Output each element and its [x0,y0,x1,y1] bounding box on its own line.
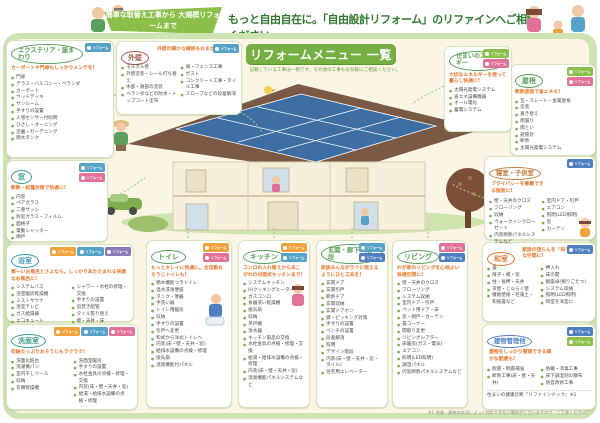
footnote: ※1 地域・建物の状況によって対応できない場合がございますので、ご了承ください。 [150,410,590,416]
bullet-icon: ● [11,116,14,123]
menu-item: ●手すりの設置 [151,322,227,329]
bullet-icon: ● [151,288,154,295]
badge-person-icon [441,256,445,260]
bullet-icon: ● [321,288,324,295]
bullet-icon: ● [487,293,490,306]
bullet-icon: ● [11,312,14,319]
bullet-icon: ● [11,229,14,236]
bullet-icon: ● [11,285,14,292]
bullet-icon: ● [489,206,492,213]
category-box-kitchen: リフォームリフォーム キッチン コンロの入れ替えからあこがれの対面式キッチンまで… [238,240,310,408]
bullet-icon: ● [151,336,154,343]
bullet-icon: ● [542,227,545,234]
menu-item: ●照明(LED照明) [397,356,463,363]
bullet-icon: ● [11,305,14,312]
refine-dock-item: 住まいの健康診断「リファインドック」※1 [487,390,591,398]
bullet-icon: ● [397,281,400,288]
menu-item: ●タイル張り替え [72,312,130,319]
menu-item: ●消臭機能付パネル [151,363,227,370]
menu-item: ●畳 [487,266,538,273]
bullet-icon: ● [397,288,400,295]
bullet-icon: ● [11,95,14,102]
menu-item: ●床の間 [541,273,592,280]
bullet-icon: ● [11,365,14,372]
category-badge: リフォーム [50,247,76,256]
banner-ribbon: 簡単な取替え工事から 大規模リフォームまで [104,7,222,34]
bullet-icon: ● [243,376,246,389]
badge-person-icon [283,246,287,250]
menu-item: ●システムキッチン [243,281,305,288]
menu-item: ●IHクッキングヒーター [243,288,305,295]
badge-person-icon [81,166,85,170]
menu-item: ●水栓金具の点検・修理・交換 [243,342,305,355]
bullet-icon: ● [11,123,14,130]
bullet-icon: ● [515,112,518,119]
bullet-icon: ● [515,133,518,140]
category-badge: リフォーム [109,327,135,336]
badge-person-icon [107,250,111,254]
bullet-icon: ● [489,199,492,206]
bullet-icon: ● [542,206,545,213]
bullet-icon: ● [515,126,518,133]
menu-item: ●押入れ [541,266,592,273]
bullet-icon: ● [321,357,324,370]
menu-item: ●衣類乾燥機 [11,386,71,393]
menu-item: ●面格子 [11,222,103,229]
category-badge: リフォーム [359,253,385,262]
menu-item: ●塀・フェンス工事 [181,65,238,72]
badge-person-icon [569,330,573,334]
bullet-icon: ● [11,222,14,229]
badge-person-icon [485,62,489,66]
bullet-icon: ● [397,336,400,343]
badge-person-icon [52,250,56,254]
menu-item: ●内装断熱パネルシステムなど [489,233,539,246]
badge-person-icon [283,256,287,260]
category-caption: わが家のリビングを心地よい快適空間に! [397,266,463,279]
menu-item: ●フローリング [489,206,539,213]
bullet-icon: ● [321,302,324,309]
menu-item: ●内装(床・壁・天井・窓・タイル) [321,357,383,370]
category-box-genkan: リフォームリフォーム 玄関・廊下・階段 家族みんながラクに使えるようにひと工夫を… [316,240,388,408]
bullet-icon: ● [243,281,246,288]
bullet-icon: ● [449,95,452,102]
menu-item: ●シャワー・水栓の修理・交換 [72,285,130,298]
badge-person-icon [80,250,84,254]
badge-person-icon [205,256,209,260]
category-badge: リフォーム [567,337,593,346]
category-badge: リフォーム [81,327,107,336]
bullet-icon: ● [74,365,77,372]
category-box-toilet: リフォームリフォーム トイレ もっとキレイに快適に。全自動おそうじトイレも! ●… [146,240,232,408]
menu-item: ●浄水器 [243,329,305,336]
bullet-icon: ● [397,370,400,377]
menu-item: ●テラス・バルコニー・ベランダ [11,82,109,89]
category-badge: リフォーム [567,245,593,254]
category-title: トイレ [151,250,186,264]
menu-item: ●機能壁紙・珪藻土・和紙畳など [487,293,538,306]
category-badge: リフォーム [483,49,509,58]
menu-item: ●雨水タンク [11,136,109,143]
category-badge: リフォーム [203,253,229,262]
bullet-icon: ● [243,342,246,355]
category-badge: リフォーム [439,253,465,262]
category-badge: リフォーム [359,243,385,252]
badge-person-icon [569,340,573,344]
bullet-icon: ● [542,220,545,227]
category-badge: リフォーム [203,243,229,252]
bullet-icon: ● [72,298,75,305]
page-title: リフォームメニュー 一覧 [246,44,396,64]
bullet-icon: ● [121,92,124,105]
bullet-icon: ● [321,316,324,323]
badge-person-icon [84,330,88,334]
menu-item: ●コンクリート工事・タイル工事 [181,79,238,92]
bullet-icon: ● [243,322,246,329]
bullet-icon: ● [151,349,154,356]
badge-person-icon [569,80,573,84]
bullet-icon: ● [151,363,154,370]
category-badge: リフォーム [105,247,131,256]
bullet-icon: ● [397,349,400,356]
bullet-icon: ● [515,139,518,146]
badge-person-icon [441,246,445,250]
category-title: 建物管理他 [487,335,532,348]
bullet-icon: ● [72,305,75,312]
category-caption: 断熱塗装で省エネも! [515,90,591,96]
menu-item: ●雨漏り [515,119,591,126]
bullet-icon: ● [397,308,400,315]
menu-item: ●壁・天井のクロス [397,281,463,288]
category-badge: リフォーム [567,327,593,336]
menu-item: ●玄関ドアホン [321,309,383,316]
menu-item: ●防犯ガラス・フィルム [11,215,103,222]
menu-item: ●エアコン [542,206,592,213]
bullet-icon: ● [321,281,324,288]
bullet-icon: ● [11,299,14,306]
menu-item: ●木部・鉄部の塗装 [121,85,178,92]
category-title: エクステリア・屋まわり [11,44,83,64]
menu-item: ●防音改修工事 [541,381,592,388]
menu-item: ●玄関収納 [321,302,383,309]
bullet-icon: ● [487,266,490,273]
category-box-shinshitsu: リフォーム 寝室・子供室 プライバシーを尊重できる個室に! ●壁・天井のクロス●… [484,156,596,240]
category-box-energy: リフォームリフォーム 住まいのエネルギー 大切なエネルギーを使って暮らし快適に!… [444,46,512,132]
menu-item: ●人感センサー付照明 [11,116,109,123]
menu-item: ●照明 [321,343,383,350]
bullet-icon: ● [397,295,400,302]
menu-item: ●断熱ドア [321,295,383,302]
bullet-icon: ● [542,213,545,220]
category-title: 寝室・子供室 [489,167,541,180]
category-title: キッチン [243,250,285,264]
category-caption: カーポートや門扉もしっかりメンテを! [11,66,109,72]
menu-item: ●節水機能つきトイレ [151,281,227,288]
category-badge: リフォーム [567,77,593,86]
category-box-living: リフォームリフォーム リビング わが家のリビングを心地よい快適空間に! ●壁・天… [392,240,468,408]
bullet-icon: ● [11,235,14,242]
menu-item: ●収納 [489,213,539,220]
bullet-icon: ● [487,273,490,280]
bullet-icon: ● [11,102,14,109]
badge-person-icon [361,246,365,250]
category-box-senmenshitsu: リフォームリフォームリフォーム 洗面室 収納たっぷりおそうじもラクラク! ●洗面… [6,324,138,410]
menu-item: ●窓・網戸・カーテン [397,315,463,322]
menu-item: ●引戸へ変更 [151,329,227,336]
badge-person-icon [569,70,573,74]
menu-item: ●畳コーナー [397,322,463,329]
bullet-icon: ● [541,280,544,287]
menu-item: ●カーテン [542,227,592,234]
bullet-icon: ● [11,130,14,137]
bullet-icon: ● [542,199,545,206]
bullet-icon: ● [243,369,246,376]
bullet-icon: ● [515,99,518,106]
category-caption: 建物をしっかり管理できる細かな配慮も! [489,350,553,363]
badge-person-icon [215,47,219,51]
bullet-icon: ● [11,109,14,116]
bullet-icon: ● [11,372,14,379]
menu-item: ●障子・襖・窓 [487,273,538,280]
category-badge: リフォーム [79,173,105,182]
bullet-icon: ● [243,315,246,322]
bullet-icon: ● [541,273,544,280]
bullet-icon: ● [181,92,184,99]
category-title: 和室 [487,252,515,266]
category-caption: 断熱・結露対策で快適に! [11,186,103,192]
category-caption: プライバシーを尊重できる個室に! [491,182,547,195]
menu-item: ●段差解消 [321,336,383,343]
bullet-icon: ● [321,322,324,329]
bullet-icon: ● [121,85,124,92]
bullet-icon: ● [321,329,324,336]
menu-item: ●収納 [151,315,227,322]
bullet-icon: ● [11,208,14,215]
menu-item: ●ポスト [181,72,238,79]
bullet-icon: ● [449,101,452,108]
bullet-icon: ● [121,72,124,85]
category-badge: リフォーム [439,243,465,252]
bullet-icon: ● [243,329,246,336]
category-title: 洗面室 [11,334,46,348]
bullet-icon: ● [489,233,492,246]
menu-item: ●内窓断熱パネルシステムなど [397,370,463,377]
category-caption: 収納たっぷりおそうじもラクラク! [11,350,133,356]
badge-person-icon [205,246,209,250]
menu-item: ●門扉 [11,75,109,82]
bullet-icon: ● [181,65,184,72]
bullet-icon: ● [449,108,452,115]
category-badge: リフォーム [213,44,239,53]
bullet-icon: ● [11,82,14,89]
bullet-icon: ● [397,356,400,363]
bullet-icon: ● [74,372,77,385]
category-title: リビング [397,250,439,264]
category-box-yokushitsu: リフォームリフォームリフォーム 浴室 寒〜いお風呂とさよなら。しっかりあたたまれ… [6,244,134,322]
menu-item: ●雨とい [515,126,591,133]
menu-item: ●ひさし・オーニング [11,123,109,130]
category-title: 窓 [11,170,32,184]
category-badge: リフォーム [85,43,111,52]
bullet-icon: ● [151,356,154,363]
bullet-icon: ● [541,381,544,388]
bullet-icon: ● [321,350,324,357]
menu-item: ●照明(LED照明) [542,213,592,220]
category-title: 屋根 [515,74,543,88]
category-caption: 家族みんながラクに使えるようにひと工夫を! [321,266,383,279]
bullet-icon: ● [243,308,246,315]
bullet-icon: ● [181,79,184,92]
menu-item: ●間取り変更 [397,329,463,336]
category-badge: リフォーム [79,163,105,172]
bullet-icon: ● [11,201,14,208]
menu-item: ●追焚き配管 [72,305,130,312]
bullet-icon: ● [321,343,324,350]
bullet-icon: ● [74,385,77,392]
bullet-icon: ● [151,295,154,302]
reform-menu-poster: 簡単な取替え工事から 大規模リフォームまで もっと自由自在に。「自由設計リフォー… [0,0,600,423]
menu-item: ●デザイン階段 [321,350,383,357]
menu-item: ●蓄電システム [449,108,507,115]
bullet-icon: ● [11,195,14,202]
bullet-icon: ● [449,88,452,95]
bullet-icon: ● [243,301,246,308]
category-badge: リフォーム [567,67,593,76]
bullet-icon: ● [321,295,324,302]
menu-item: ●給湯・給排水設備の点検・修理 [243,356,305,369]
bullet-icon: ● [243,295,246,302]
bullet-icon: ● [321,336,324,343]
category-badge: リフォーム [281,243,307,252]
menu-item: ●ウォークインクローゼット [489,220,539,233]
category-badge: リフォーム [281,253,307,262]
bullet-icon: ● [321,370,324,377]
bullet-icon: ● [515,105,518,112]
bullet-icon: ● [515,119,518,126]
bullet-icon: ● [487,280,490,287]
category-badge: リフォーム [54,327,80,336]
bullet-icon: ● [541,300,544,307]
menu-item: ●柱・長押・天井 [487,280,538,287]
menu-item: ●フローリング [397,288,463,295]
bullet-icon: ● [397,315,400,322]
category-caption: 大切なエネルギーを使って暮らし快適に! [449,73,507,86]
menu-item: ●水栓金具の点検・修理・交換 [74,372,134,385]
menu-item: ●収納 [243,315,305,322]
badge-person-icon [56,330,60,334]
bullet-icon: ● [541,287,544,294]
menu-item: ●窓 [542,220,592,227]
bullet-icon: ● [151,329,154,336]
bullet-icon: ● [489,220,492,233]
category-title: 浴室 [11,254,39,268]
menu-item: ●住宅用エレベーター [321,370,383,377]
category-title: 外壁 [121,51,149,65]
menu-item: ●断熱工事(床・壁・天井) [487,374,538,387]
bullet-icon: ● [397,301,400,308]
menu-item: ●消臭機能パネルシステムなど [243,376,305,389]
bullet-icon: ● [487,374,490,387]
category-badge: リフォーム [567,159,593,168]
bullet-icon: ● [397,322,400,329]
bullet-icon: ● [151,322,154,329]
bullet-icon: ● [74,359,77,366]
menu-item: ●ベンチの設置 [321,329,383,336]
bullet-icon: ● [151,281,154,288]
bullet-icon: ● [11,75,14,82]
menu-item: ●浴室暖房乾燥機 [11,292,69,299]
menu-item: ●モルタル壁 [121,65,178,72]
bullet-icon: ● [11,215,14,222]
bullet-icon: ● [151,315,154,322]
bullet-icon: ● [11,379,14,386]
menu-item: ●内装(床・壁・天井・窓) [243,369,305,376]
badge-person-icon [569,248,573,252]
menu-item: ●網戸 [11,235,103,242]
bullet-icon: ● [74,392,77,405]
bullet-icon: ● [11,136,14,143]
bullet-icon: ● [541,293,544,300]
bullet-icon: ● [151,308,154,315]
bullet-icon: ● [489,213,492,220]
bullet-icon: ● [11,292,14,299]
bullet-icon: ● [397,363,400,370]
bullet-icon: ● [541,374,544,381]
menu-item: ●吊戸棚 [243,322,305,329]
badge-person-icon [87,46,91,50]
bullet-icon: ● [397,342,400,349]
menu-item: ●手すりの設置 [11,109,109,116]
menu-item: ●スロープなどの段差解消 [181,92,238,99]
menu-item: ●給湯・給排水設備の点検・修理 [74,392,134,405]
menu-item: ●和室を洋室に [541,300,592,307]
category-box-tatemono-kanri: リフォームリフォーム 建物管理他 建物をしっかり管理できる細かな配慮も! ●耐震… [482,324,596,410]
bullet-icon: ● [487,287,490,294]
bullet-icon: ● [397,329,400,336]
menu-item: ●床下調湿剤の散布 [541,374,592,381]
category-caption: もっとキレイに快適に。全自動おそうじトイレも! [151,266,227,279]
category-badge: リフォーム [77,247,103,256]
badge-person-icon [485,52,489,56]
bullet-icon: ● [487,367,490,374]
badge-person-icon [111,330,115,334]
badge-person-icon [81,176,85,180]
menu-item: ●温水洗浄便座 [151,288,227,295]
menu-item: ●室内干しツール [11,372,71,379]
menu-item: ●太陽光発電システム [515,146,591,153]
bullet-icon: ● [243,356,246,369]
bullet-icon: ● [243,288,246,295]
category-box-gaiheki: リフォーム 外壁 外壁の細かな補修もおまかせ! ●モルタル壁●外壁塗装・シール打… [116,41,242,115]
menu-item: ●換気扇 [151,356,227,363]
menu-item: ●二重サッシ [11,208,103,215]
category-caption: コンロの入れ替えからあこがれの対面式キッチンまで! [243,266,305,279]
menu-item: ●外壁塗装・シール打ち替え [121,72,178,85]
category-caption: 寒〜いお風呂とさよなら。しっかりあたたまれる快適なお風呂に! [11,270,129,283]
bullet-icon: ● [151,342,154,349]
bullet-icon: ● [72,312,75,319]
menu-item: ●システムバス [11,285,69,292]
category-box-mado: リフォームリフォーム 窓 断熱・結露対策で快適に! ●内窓●ペアガラス●二重サッ… [6,160,108,242]
menu-item: ●葺き替え [515,112,591,119]
menu-item: ●収納 [11,379,71,386]
bullet-icon: ● [72,285,75,298]
bullet-icon: ● [11,359,14,366]
bullet-icon: ● [11,89,14,96]
menu-item: ●太陽光発電システム [449,88,507,95]
menu-item: ●調湿パネル [397,363,463,370]
menu-item: ●掘座卓(掘りごたつ) [541,280,592,287]
